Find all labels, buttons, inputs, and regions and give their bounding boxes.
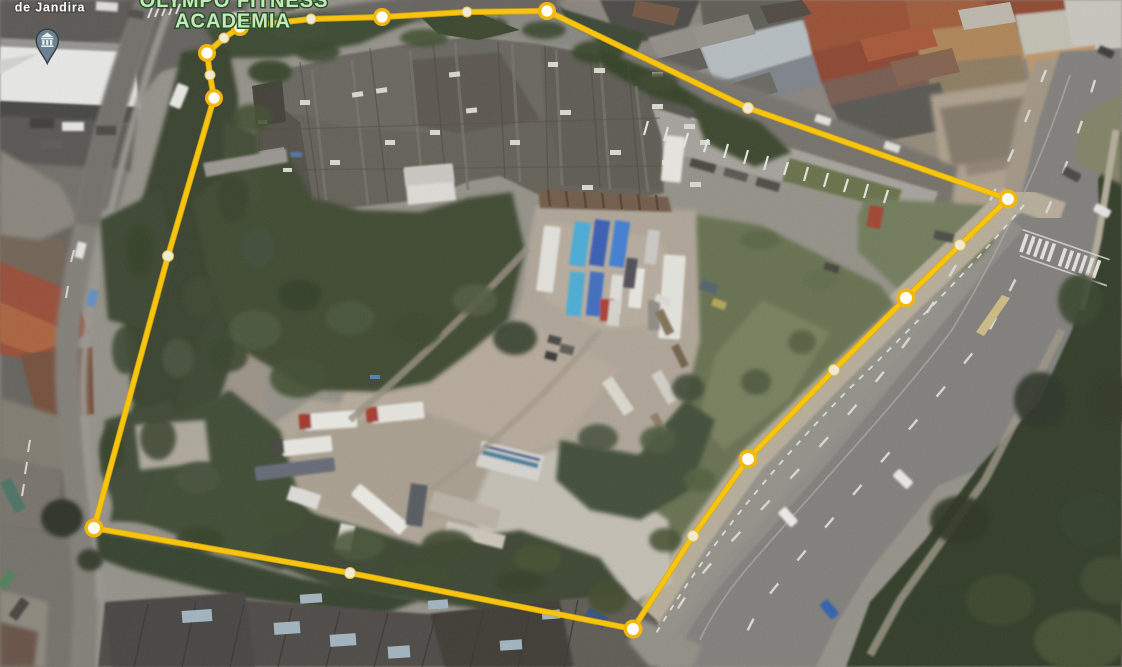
svg-text:de Jandira: de Jandira [15,1,86,15]
svg-text:ACADEMIA: ACADEMIA [175,11,291,33]
